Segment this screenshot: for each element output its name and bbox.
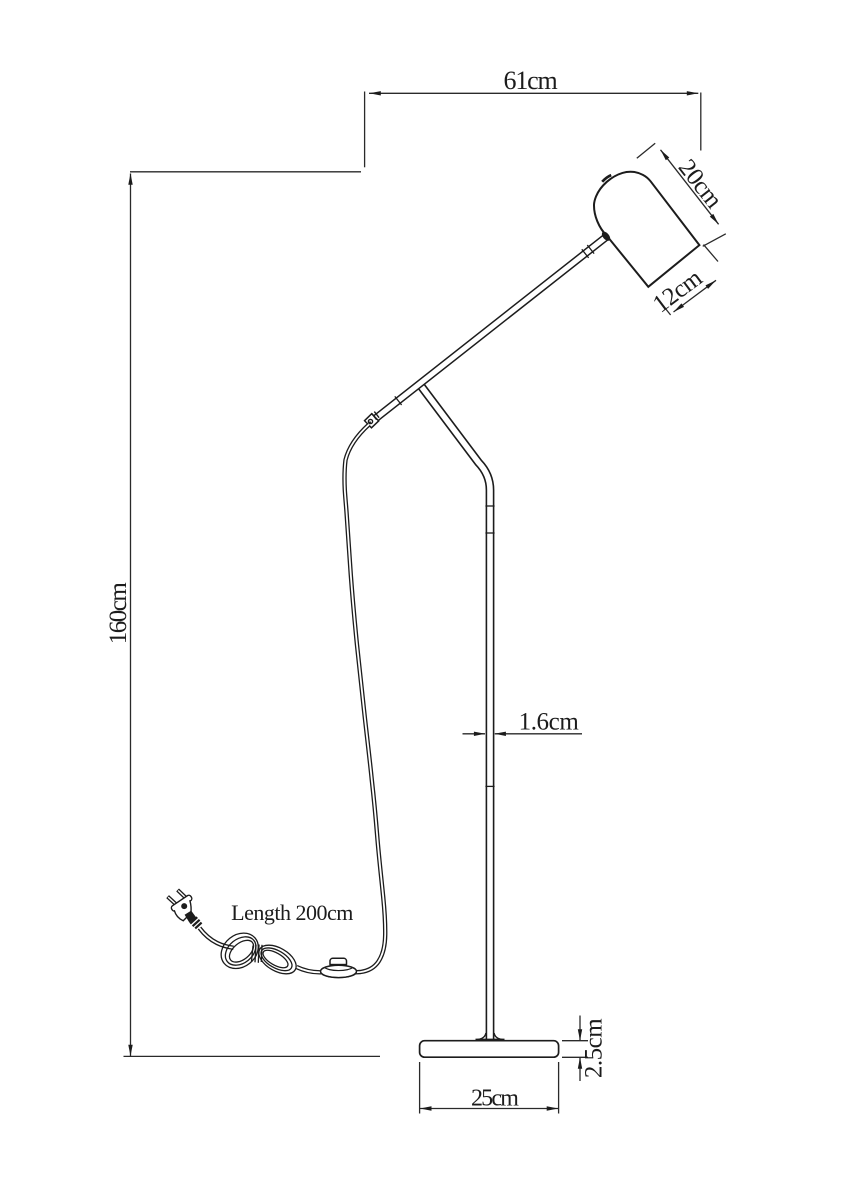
svg-text:2.5cm: 2.5cm bbox=[580, 1018, 607, 1078]
svg-text:Length 200cm: Length 200cm bbox=[231, 900, 353, 925]
svg-text:61cm: 61cm bbox=[504, 66, 558, 95]
svg-text:160cm: 160cm bbox=[105, 582, 132, 645]
svg-text:1.6cm: 1.6cm bbox=[519, 709, 580, 736]
svg-text:25cm: 25cm bbox=[471, 1086, 519, 1112]
